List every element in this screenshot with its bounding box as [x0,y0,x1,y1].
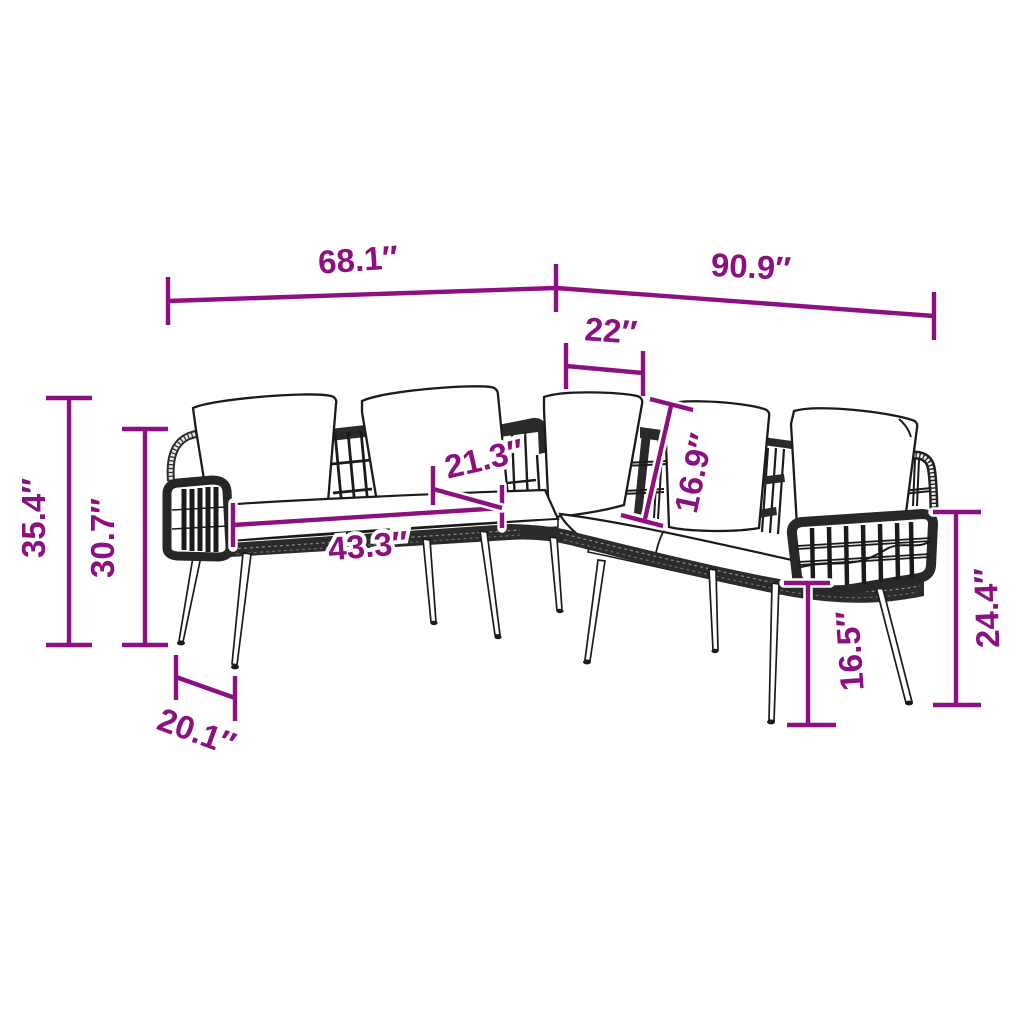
svg-text:22″: 22″ [583,310,638,351]
svg-text:16.5″: 16.5″ [828,610,871,693]
svg-text:24.4″: 24.4″ [967,567,1007,648]
svg-text:90.9″: 90.9″ [710,246,792,287]
svg-text:43.3″: 43.3″ [327,524,410,568]
svg-text:68.1″: 68.1″ [317,238,400,281]
svg-text:30.7″: 30.7″ [84,498,121,578]
svg-text:35.4″: 35.4″ [15,478,52,558]
